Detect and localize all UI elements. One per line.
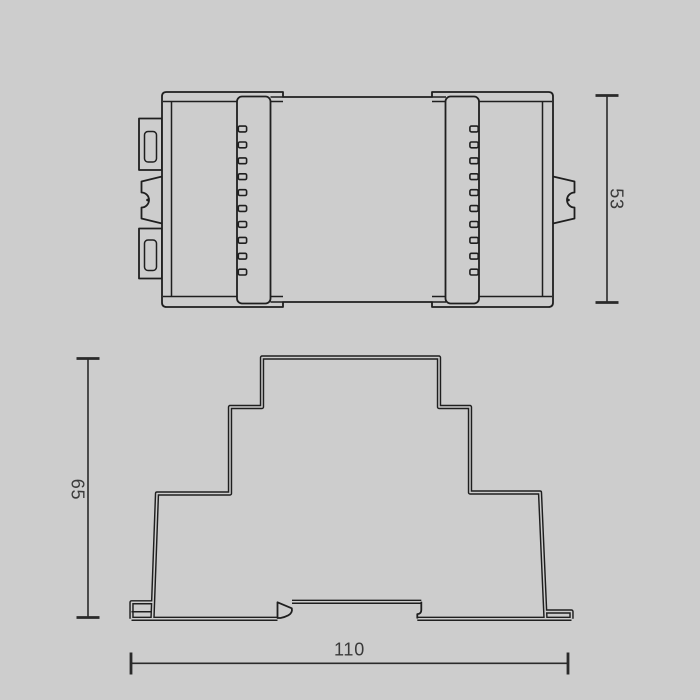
top-view-drawing (139, 92, 575, 307)
dimension-side-view-width: 110 (131, 640, 568, 675)
mounting-ear-top-left (139, 119, 162, 171)
din-clip-right (553, 177, 575, 224)
hook-left (278, 602, 292, 618)
dimension-drawing-svg: 53 65 110 (0, 0, 700, 700)
side-view-drawing (132, 358, 572, 619)
mounting-ear-bottom-left (139, 229, 162, 279)
profile-outline (132, 358, 572, 619)
dimension-side-view-height: 65 (68, 359, 100, 618)
dimension-label-110: 110 (334, 640, 365, 660)
technical-drawing-page: 53 65 110 (0, 0, 700, 700)
dimension-top-view-height: 53 (596, 96, 627, 303)
hook-right (417, 602, 421, 619)
dimension-label-53: 53 (607, 188, 627, 210)
din-clip-left (142, 177, 163, 224)
housing-body-outline (162, 92, 553, 307)
center-mark (567, 199, 570, 202)
dimension-label-65: 65 (68, 479, 88, 501)
din-rail-hooks (278, 602, 422, 619)
center-mark (146, 199, 149, 202)
